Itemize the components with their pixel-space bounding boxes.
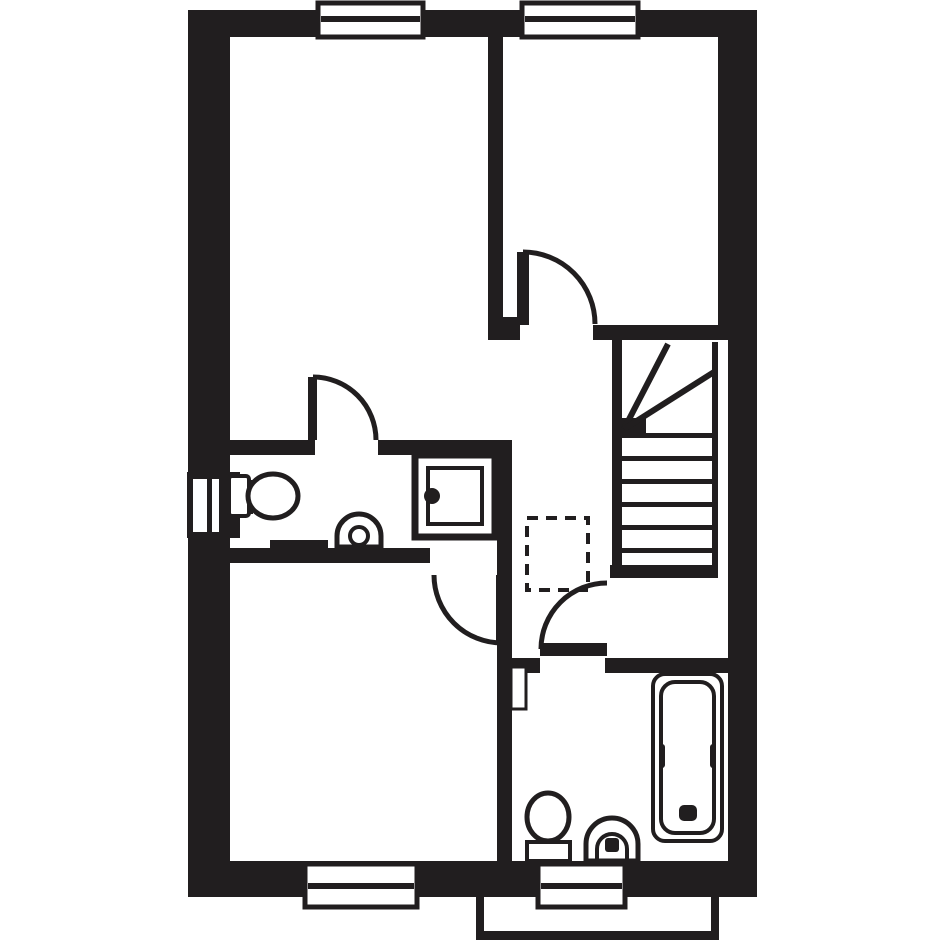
bathroom-door-leaf bbox=[540, 643, 607, 656]
stair-tread-4 bbox=[622, 502, 712, 507]
bathroom-basin-tap bbox=[605, 838, 619, 852]
wall-bedroom-divider bbox=[488, 37, 503, 317]
wall-jamb-bedroom2-door bbox=[488, 317, 520, 340]
window-top-right-mullion bbox=[525, 16, 635, 22]
ensuite-toilet-bowl bbox=[248, 474, 298, 518]
bath-waist-left bbox=[659, 744, 665, 768]
stair-tread-6 bbox=[622, 548, 712, 553]
porch-step-right bbox=[711, 897, 719, 940]
window-left-pane-inner bbox=[212, 479, 219, 532]
wall-right-exterior-lower bbox=[728, 340, 757, 897]
cupboard-dashed-outline bbox=[527, 518, 588, 590]
wall-ensuite-top-left bbox=[230, 440, 315, 455]
ensuite-door-swing bbox=[313, 377, 376, 440]
ensuite-door-leaf bbox=[308, 377, 317, 440]
wall-bathroom-top-right bbox=[605, 658, 730, 673]
layer-ensuite-fixtures bbox=[229, 455, 495, 548]
window-top-left-mullion bbox=[321, 16, 420, 22]
ensuite-basin-bowl bbox=[350, 527, 368, 545]
stair-tread-2 bbox=[622, 456, 712, 461]
bathroom-door-swing bbox=[541, 583, 607, 649]
stair-tread-5 bbox=[622, 525, 712, 530]
layer-storage bbox=[527, 518, 588, 590]
wall-bedroom2-landing bbox=[593, 325, 730, 340]
wall-jamb-bedroom3-door bbox=[497, 560, 512, 575]
floorplan-page bbox=[0, 0, 945, 945]
wall-bottom-exterior bbox=[188, 861, 757, 897]
bathroom-toilet-bowl bbox=[527, 793, 569, 841]
bath-waist-right bbox=[710, 744, 716, 768]
window-bottom-left-mullion bbox=[308, 883, 414, 889]
bedroom2-door-leaf bbox=[517, 252, 529, 325]
stair-tread-3 bbox=[622, 479, 712, 484]
bathroom-toilet-cistern bbox=[527, 842, 570, 861]
wall-top-exterior bbox=[188, 10, 757, 37]
bedroom2-door-swing bbox=[523, 252, 595, 324]
floorplan-drawing bbox=[0, 0, 945, 945]
bedroom3-door-leaf bbox=[496, 575, 509, 645]
layer-bathroom-fixtures bbox=[511, 667, 722, 861]
wall-ensuite-bottom bbox=[230, 548, 430, 563]
porch-step-bottom bbox=[476, 931, 719, 940]
wall-left-exterior bbox=[188, 10, 230, 897]
ensuite-radiator bbox=[270, 540, 328, 548]
window-bottom-right-mullion bbox=[541, 883, 622, 889]
layer-stairs bbox=[612, 342, 718, 565]
bedroom3-door-swing bbox=[434, 575, 502, 643]
bath-plug bbox=[679, 805, 697, 821]
wall-ensuite-right bbox=[497, 440, 512, 563]
wall-stairwell-left bbox=[612, 340, 622, 565]
shower-drain-dot bbox=[424, 488, 440, 504]
wall-stair-bottom bbox=[610, 565, 718, 578]
window-left-pane-outer bbox=[193, 479, 207, 532]
wall-right-exterior-upper bbox=[718, 10, 757, 340]
bathroom-radiator bbox=[511, 667, 526, 709]
